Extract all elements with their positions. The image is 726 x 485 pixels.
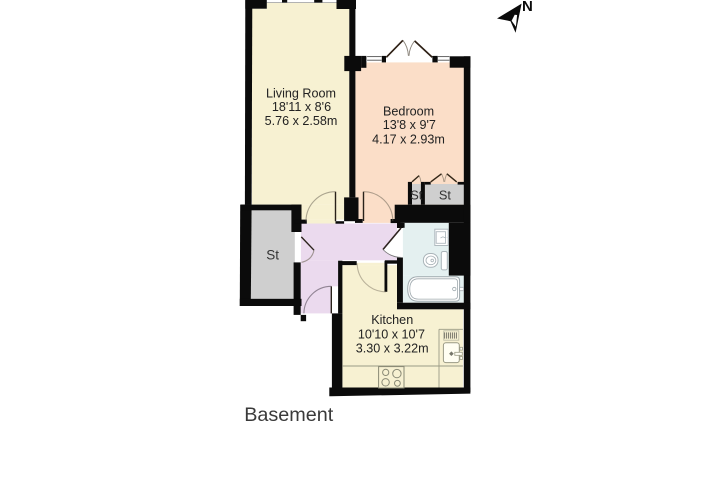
svg-text:18'11 x 8'6: 18'11 x 8'6: [272, 100, 331, 114]
svg-text:10'10 x 10'7: 10'10 x 10'7: [358, 327, 425, 341]
svg-text:St: St: [266, 247, 279, 262]
svg-text:Bedroom: Bedroom: [383, 105, 434, 119]
svg-text:St: St: [410, 188, 423, 203]
svg-text:Basement: Basement: [244, 404, 334, 426]
svg-text:13'8 x 9'7: 13'8 x 9'7: [383, 118, 436, 132]
svg-text:4.17 x 2.93m: 4.17 x 2.93m: [372, 133, 445, 147]
svg-text:3.30 x 3.22m: 3.30 x 3.22m: [356, 342, 429, 356]
svg-text:5.76 x 2.58m: 5.76 x 2.58m: [265, 114, 338, 128]
svg-text:Living Room: Living Room: [266, 86, 336, 100]
svg-text:N: N: [522, 0, 533, 15]
svg-text:St: St: [439, 188, 452, 203]
svg-text:Kitchen: Kitchen: [371, 313, 413, 327]
